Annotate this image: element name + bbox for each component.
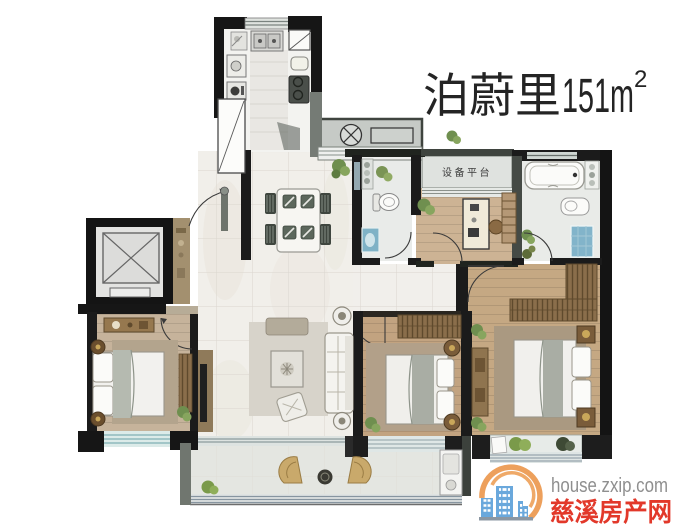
svg-text:设备平台: 设备平台 — [442, 166, 492, 179]
svg-text:house.zxip.com: house.zxip.com — [551, 475, 668, 497]
svg-text:慈溪房产网: 慈溪房产网 — [550, 497, 672, 527]
svg-text:泊蔚里151m: 泊蔚里151m — [423, 69, 634, 123]
svg-text:2: 2 — [634, 66, 647, 93]
